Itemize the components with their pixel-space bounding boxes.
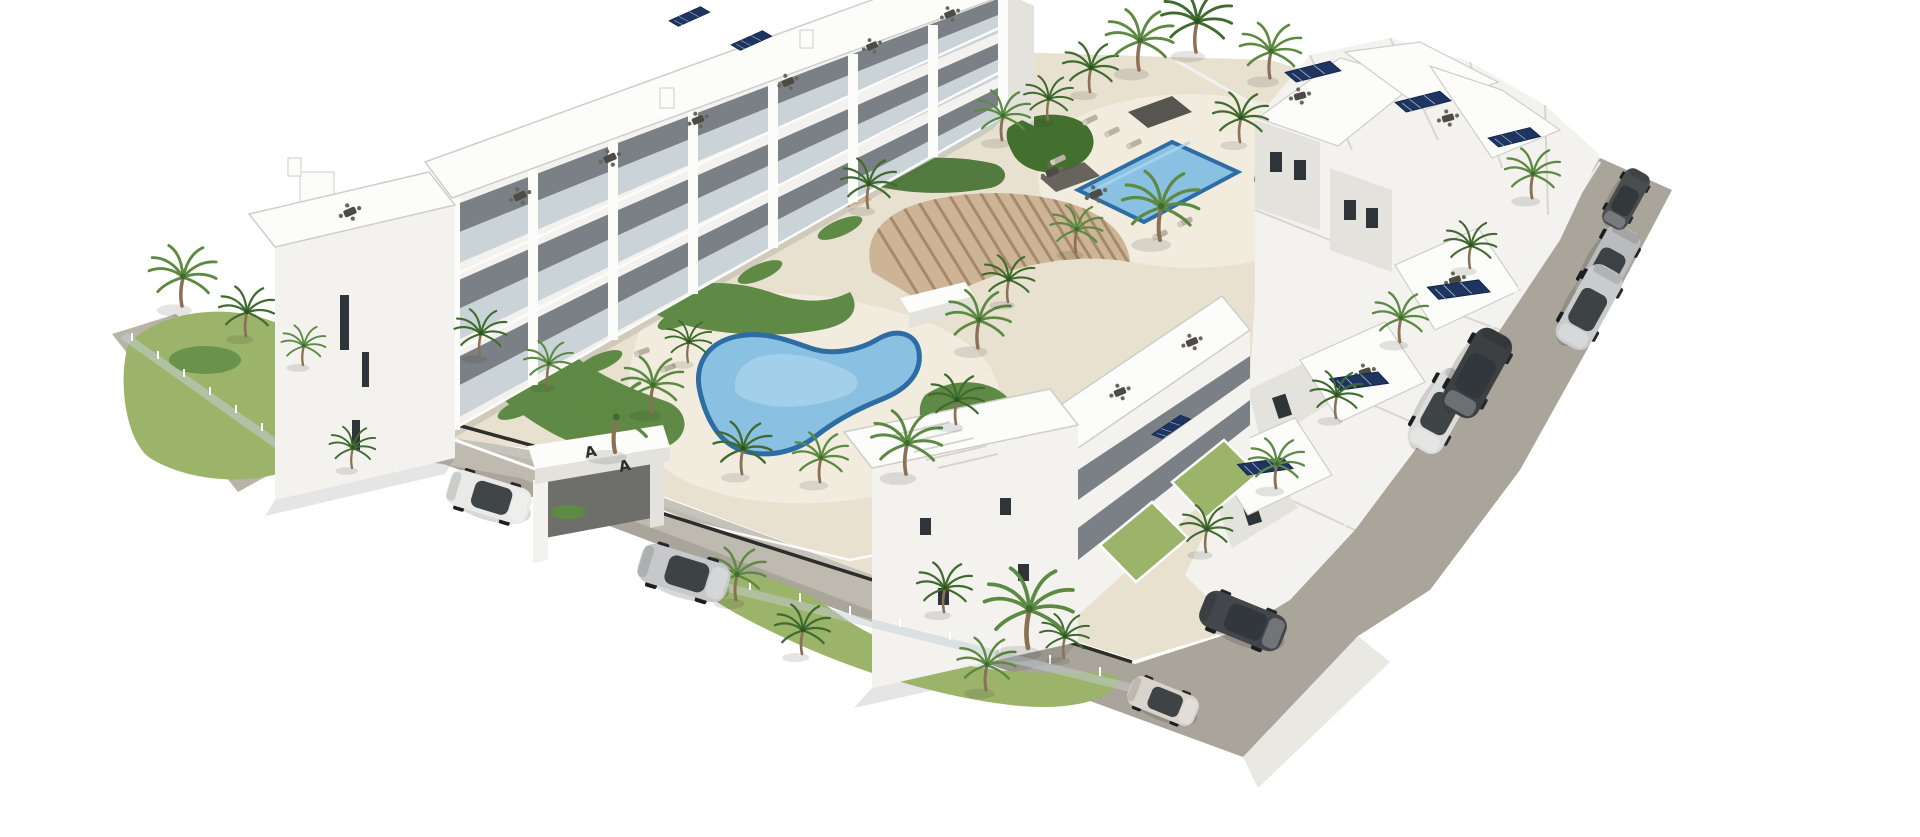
scene-svg: A A bbox=[0, 0, 1920, 837]
left-garden-bushes bbox=[169, 346, 241, 374]
gate-leg-left bbox=[533, 477, 548, 563]
render-canvas: A A bbox=[0, 0, 1920, 837]
palm-tree bbox=[1162, 0, 1232, 62]
gate-planter bbox=[550, 505, 586, 519]
entrance-gate: A A bbox=[528, 425, 670, 563]
palm-tree bbox=[149, 246, 216, 317]
